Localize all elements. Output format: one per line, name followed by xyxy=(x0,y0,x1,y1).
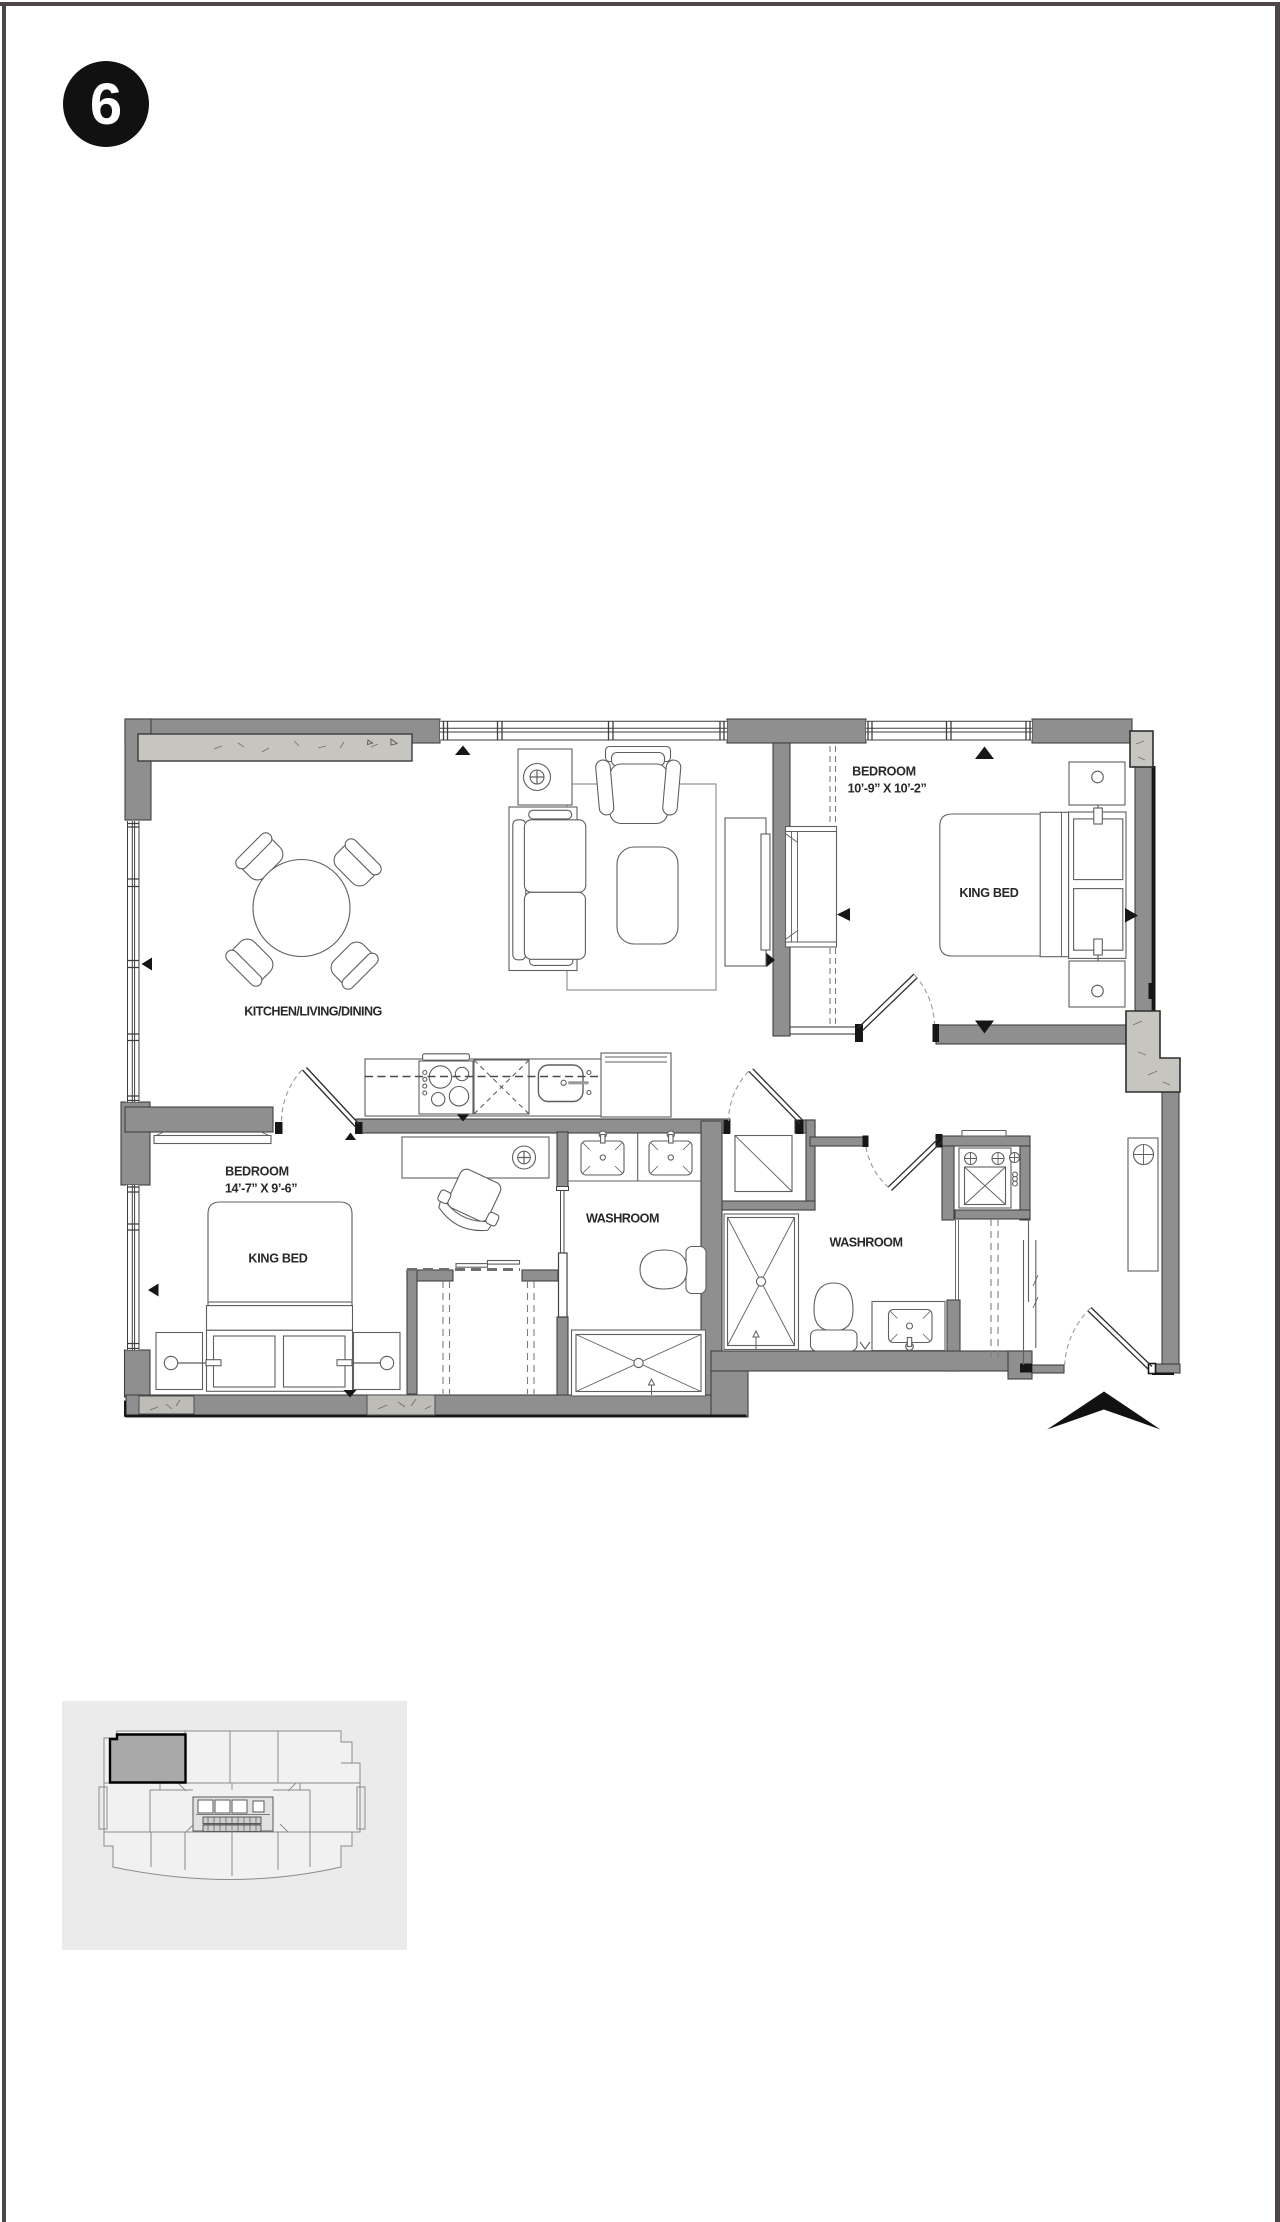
svg-text:KITCHEN/LIVING/DINING: KITCHEN/LIVING/DINING xyxy=(244,1005,382,1019)
svg-text:6: 6 xyxy=(90,72,122,137)
svg-text:WASHROOM: WASHROOM xyxy=(830,1236,903,1250)
svg-text:KING BED: KING BED xyxy=(248,1252,307,1266)
svg-text:14’-7” X 9’-6”: 14’-7” X 9’-6” xyxy=(225,1182,297,1196)
svg-text:BEDROOM: BEDROOM xyxy=(852,765,916,779)
svg-text:KING BED: KING BED xyxy=(959,886,1018,900)
svg-text:WASHROOM: WASHROOM xyxy=(586,1212,659,1226)
svg-text:10’-9” X 10’-2”: 10’-9” X 10’-2” xyxy=(848,782,927,796)
svg-text:BEDROOM: BEDROOM xyxy=(225,1165,289,1179)
